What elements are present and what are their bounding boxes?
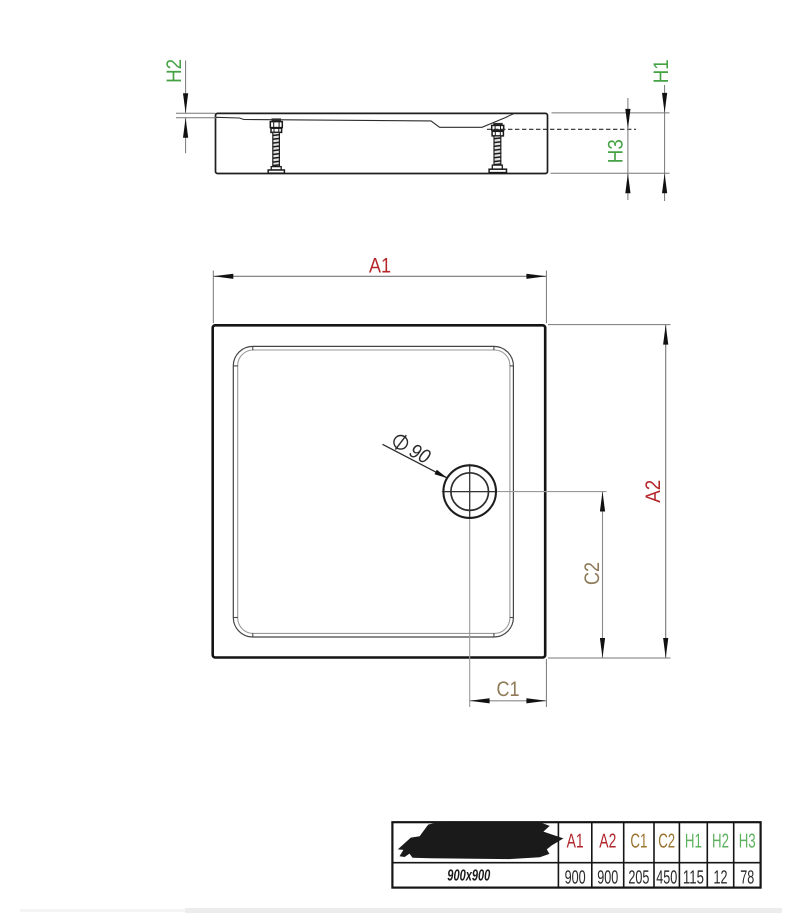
svg-text:H2: H2 xyxy=(712,831,729,853)
svg-text:H3: H3 xyxy=(739,831,756,853)
svg-text:A2: A2 xyxy=(599,831,616,853)
svg-text:A1: A1 xyxy=(567,831,584,853)
svg-text:C1: C1 xyxy=(497,678,520,701)
svg-text:900: 900 xyxy=(597,867,618,888)
svg-text:78: 78 xyxy=(740,867,754,888)
svg-text:450: 450 xyxy=(656,867,677,888)
svg-text:H1: H1 xyxy=(685,831,702,853)
svg-text:A1: A1 xyxy=(369,255,391,278)
svg-text:C2: C2 xyxy=(581,562,604,585)
svg-text:900: 900 xyxy=(565,867,586,888)
svg-text:H3: H3 xyxy=(605,139,628,163)
svg-text:H2: H2 xyxy=(163,59,186,83)
svg-text:A2: A2 xyxy=(642,480,665,503)
svg-text:C1: C1 xyxy=(630,831,647,853)
svg-text:115: 115 xyxy=(683,867,704,888)
svg-text:12: 12 xyxy=(714,867,728,888)
svg-text:C2: C2 xyxy=(658,831,675,853)
svg-text:205: 205 xyxy=(628,867,649,888)
svg-text:900x900: 900x900 xyxy=(447,868,490,885)
svg-text:H1: H1 xyxy=(650,59,673,83)
